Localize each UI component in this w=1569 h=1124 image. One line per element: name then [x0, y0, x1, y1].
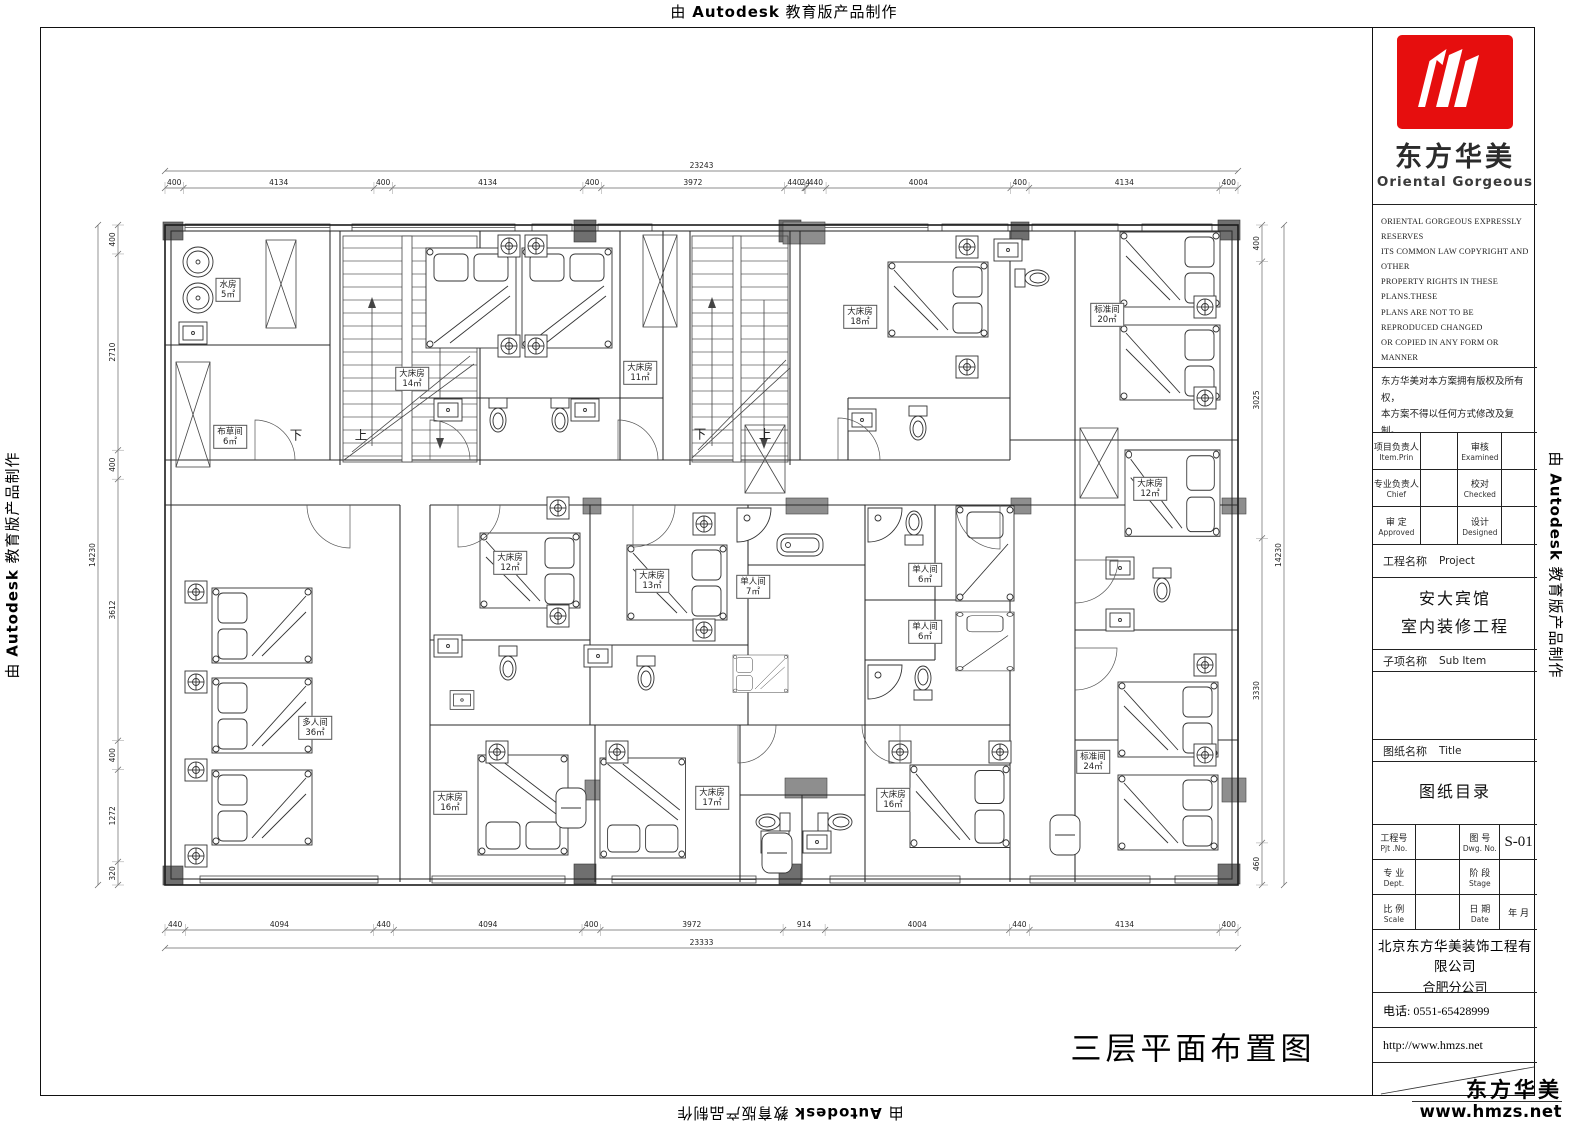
svg-text:3972: 3972 — [683, 178, 702, 187]
room-label: 标准间20㎡ — [1090, 303, 1124, 327]
room-label: 布草间6㎡ — [213, 425, 247, 449]
svg-text:3612: 3612 — [108, 600, 117, 619]
svg-text:2710: 2710 — [108, 342, 117, 361]
svg-text:400: 400 — [376, 178, 391, 187]
room-label: 大床房17㎡ — [695, 786, 729, 810]
svg-text:4094: 4094 — [270, 920, 289, 929]
stair-direction-label: 上 — [759, 424, 772, 443]
copyright-chinese: 东方华美对本方案拥有版权及所有权，本方案不得以任何方式修改及复制。未经东方华美书… — [1373, 368, 1537, 433]
svg-text:400: 400 — [1013, 178, 1028, 187]
svg-text:400: 400 — [167, 178, 182, 187]
logo-text-cn: 东方华美 — [1373, 135, 1537, 174]
floor-plan-drawing: 4004134400413440039724402444040044004134… — [0, 0, 1569, 1124]
svg-text:400: 400 — [1252, 236, 1261, 251]
logo-text-en: Oriental Gorgeous — [1373, 174, 1537, 190]
personnel-table: 项目负责人Item.Prin 审核Examined 专业负责人Chief 校对C… — [1373, 433, 1537, 545]
number-table: 工程号Pjt .No. 图 号Dwg. No. S-01 专 业Dept. 阶 … — [1373, 825, 1537, 930]
room-label: 大床房11㎡ — [623, 361, 657, 385]
room-label: 单人间6㎡ — [908, 563, 942, 587]
sub-item-value — [1373, 672, 1537, 740]
svg-text:3025: 3025 — [1252, 390, 1261, 409]
title-block: 东方华美 Oriental Gorgeous ORIENTAL GORGEOUS… — [1372, 27, 1537, 1096]
room-label: 大床房13㎡ — [635, 569, 669, 593]
room-label: 多人间36㎡ — [298, 716, 332, 740]
svg-text:3972: 3972 — [682, 920, 701, 929]
brand-corner: 东方华美 www.hmzs.net — [1412, 1080, 1562, 1121]
svg-text:4004: 4004 — [908, 920, 927, 929]
svg-text:400: 400 — [584, 920, 599, 929]
room-label: 标准间24㎡ — [1076, 750, 1110, 774]
svg-text:23243: 23243 — [690, 161, 714, 170]
room-label: 大床房12㎡ — [493, 551, 527, 575]
svg-text:4134: 4134 — [478, 178, 497, 187]
svg-text:23333: 23333 — [690, 938, 714, 947]
copyright-english: ORIENTAL GORGEOUS EXPRESSLY RESERVESITS … — [1373, 205, 1537, 368]
project-label-row: 工程名称Project — [1373, 545, 1537, 578]
sub-item-row: 子项名称Sub Item — [1373, 650, 1537, 672]
stair-direction-label: 下 — [290, 425, 303, 444]
svg-text:14230: 14230 — [1274, 543, 1283, 567]
svg-text:440: 440 — [1012, 920, 1027, 929]
svg-text:4134: 4134 — [1115, 920, 1134, 929]
svg-text:14230: 14230 — [88, 543, 97, 567]
room-label: 大床房12㎡ — [1133, 477, 1167, 501]
svg-text:440: 440 — [376, 920, 391, 929]
svg-text:460: 460 — [1252, 857, 1261, 872]
svg-text:4094: 4094 — [478, 920, 497, 929]
svg-text:3330: 3330 — [1252, 681, 1261, 700]
svg-text:320: 320 — [108, 866, 117, 881]
room-label: 单人间6㎡ — [908, 620, 942, 644]
drawing-caption: 三层平面布置图 — [1071, 1024, 1316, 1069]
svg-text:914: 914 — [797, 920, 812, 929]
room-label: 大床房16㎡ — [876, 788, 910, 812]
sheet-title: 图纸目录 — [1373, 762, 1537, 825]
svg-text:4004: 4004 — [909, 178, 928, 187]
stair-direction-label: 上 — [355, 425, 368, 444]
svg-text:1272: 1272 — [108, 806, 117, 825]
svg-text:440: 440 — [809, 178, 824, 187]
svg-text:440: 440 — [168, 920, 183, 929]
drawing-number: S-01 — [1500, 825, 1537, 859]
project-name: 安大宾馆 室内装修工程 — [1373, 578, 1537, 650]
svg-text:400: 400 — [108, 457, 117, 472]
sheet-title-label-row: 图纸名称Title — [1373, 740, 1537, 762]
room-label: 水房5㎡ — [215, 278, 240, 302]
room-label: 单人间7㎡ — [736, 575, 770, 599]
date-value: 年 月 — [1500, 895, 1537, 930]
company-block: 北京东方华美装饰工程有限公司 合肥分公司 安徽省合肥市马鞍山南路绿地赢海大厦B座… — [1373, 930, 1537, 993]
stair-direction-label: 下 — [694, 424, 707, 443]
svg-text:400: 400 — [108, 748, 117, 763]
svg-text:400: 400 — [585, 178, 600, 187]
svg-text:400: 400 — [1222, 920, 1237, 929]
room-label: 大床房16㎡ — [433, 791, 467, 815]
svg-text:4134: 4134 — [269, 178, 288, 187]
logo-cell: 东方华美 Oriental Gorgeous — [1373, 27, 1537, 205]
room-label: 大床房18㎡ — [843, 305, 877, 329]
company-tel: 电话: 0551-65428999 — [1373, 993, 1537, 1028]
svg-text:400: 400 — [1222, 178, 1237, 187]
room-label: 大床房14㎡ — [395, 367, 429, 391]
svg-text:400: 400 — [108, 232, 117, 247]
company-web: http://www.hmzs.net — [1373, 1028, 1537, 1063]
svg-text:4134: 4134 — [1115, 178, 1134, 187]
oriental-gorgeous-logo-icon — [1397, 35, 1513, 129]
